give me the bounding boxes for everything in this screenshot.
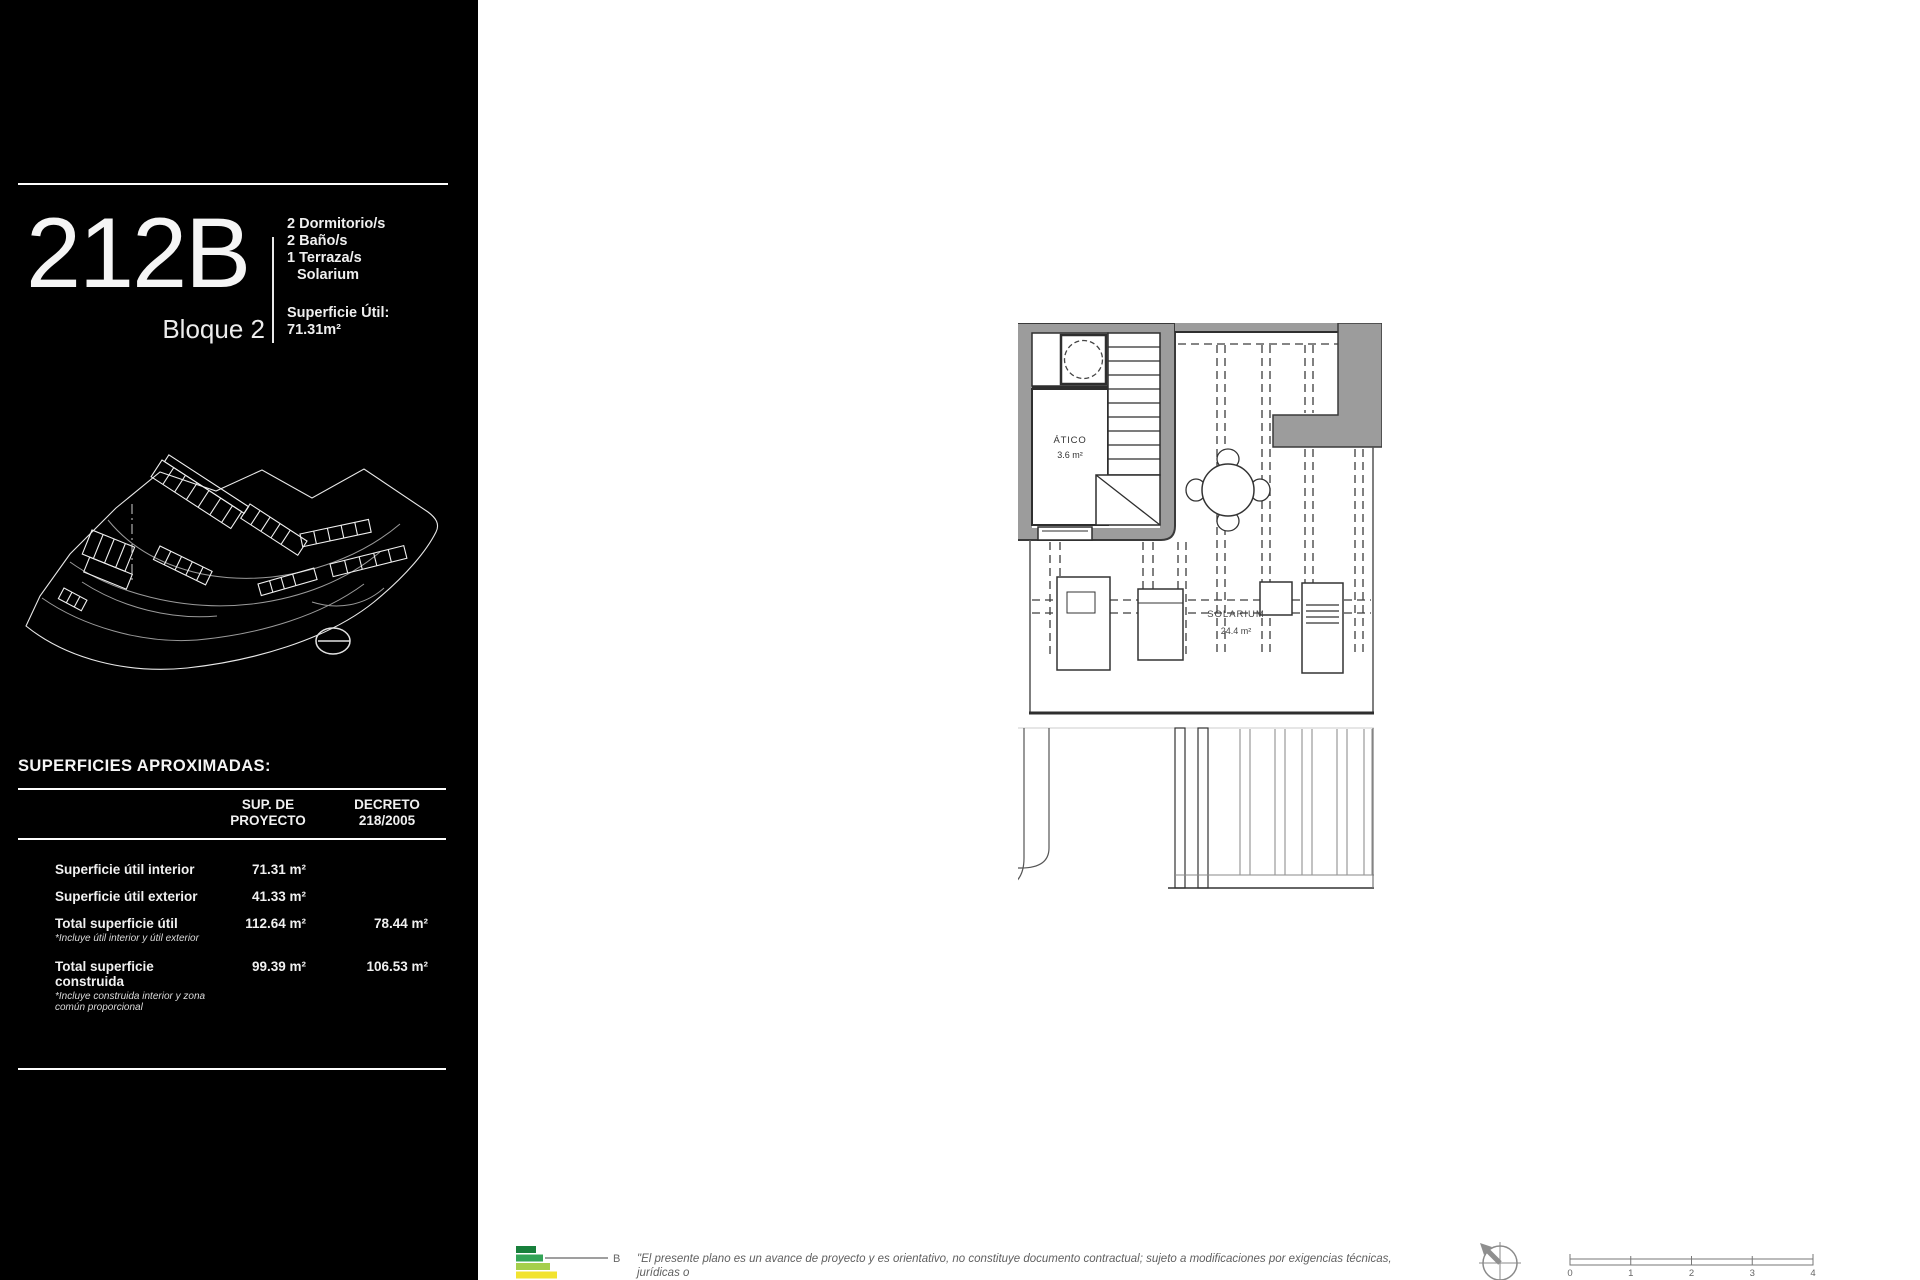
lounger-icon [1057, 577, 1110, 670]
unit-features-list: 2 Dormitorio/s 2 Baño/s 1 Terraza/s Sola… [287, 216, 385, 284]
site-plan-illustration [12, 412, 457, 687]
compass-icon [1475, 1238, 1523, 1280]
laundry-room [1032, 333, 1108, 388]
loungers [1057, 577, 1343, 673]
feature-solarium: Solarium [287, 267, 385, 284]
scale-tick-1: 1 [1628, 1268, 1633, 1278]
feature-bathrooms: 2 Baño/s [287, 233, 385, 250]
superficie-util-block: Superficie Útil: 71.31m² [287, 305, 389, 339]
superficie-util-label: Superficie Útil: [287, 305, 389, 322]
table-row: Superficie útil exterior 41.33 m² [18, 889, 446, 904]
plan-sheet-page: 212B 2 Dormitorio/s 2 Baño/s 1 Terraza/s… [0, 0, 1920, 1280]
surfaces-heading: SUPERFICIES APROXIMADAS: [18, 757, 271, 776]
energy-rating-icon: B [516, 1246, 651, 1280]
disclaimer-line-1: "El presente plano es un avance de proye… [637, 1253, 1427, 1280]
svg-text:SOLARIUM: SOLARIUM [1207, 609, 1265, 620]
lounger-icon [1302, 583, 1343, 673]
site-buildings [58, 453, 407, 611]
site-marker-symbol [316, 628, 350, 654]
unit-id: 212B [26, 196, 249, 310]
floor-plan: ÁTICO 3.6 m² [1018, 323, 1382, 900]
scale-tick-4: 4 [1810, 1268, 1815, 1278]
table-row: Superficie útil interior 71.31 m² [18, 862, 446, 877]
scale-tick-2: 2 [1689, 1268, 1694, 1278]
lower-floor-railings [1018, 728, 1374, 888]
table-row: Total superficie construida *Incluye con… [18, 959, 446, 1014]
sidebar: 212B 2 Dormitorio/s 2 Baño/s 1 Terraza/s… [0, 0, 478, 1280]
feature-bedrooms: 2 Dormitorio/s [287, 216, 385, 233]
superficie-util-value: 71.31m² [287, 322, 389, 339]
col-header-decreto: DECRETO 218/2005 [328, 797, 446, 829]
surfaces-table-header: SUP. DE PROYECTO DECRETO 218/2005 [18, 790, 446, 840]
round-table-icon [1202, 464, 1254, 516]
header-divider [272, 237, 274, 343]
feature-terraces: 1 Terraza/s [287, 250, 385, 267]
solarium-label: SOLARIUM 24.4 m² [1207, 609, 1265, 636]
lounger-icon [1138, 589, 1183, 660]
site-boundary [26, 469, 438, 669]
svg-text:24.4 m²: 24.4 m² [1221, 626, 1252, 636]
sidebar-top-rule [18, 183, 448, 185]
scale-tick-0: 0 [1567, 1268, 1572, 1278]
scale-tick-3: 3 [1750, 1268, 1755, 1278]
table-row: Total superficie útil *Incluye útil inte… [18, 916, 446, 945]
energy-rating-letter: B [613, 1253, 620, 1265]
atico-label: ÁTICO [1053, 435, 1086, 446]
atico-area: 3.6 m² [1057, 450, 1083, 460]
block-label: Bloque 2 [60, 314, 265, 345]
site-roads [42, 520, 400, 641]
dining-set [1186, 449, 1270, 531]
threshold [1038, 527, 1092, 540]
surfaces-table: SUP. DE PROYECTO DECRETO 218/2005 Superf… [18, 788, 446, 1070]
col-header-proyecto: SUP. DE PROYECTO [208, 797, 328, 829]
scale-bar: 0 1 2 3 4 [1567, 1252, 1819, 1278]
disclaimer-text: "El presente plano es un avance de proye… [637, 1253, 1427, 1280]
